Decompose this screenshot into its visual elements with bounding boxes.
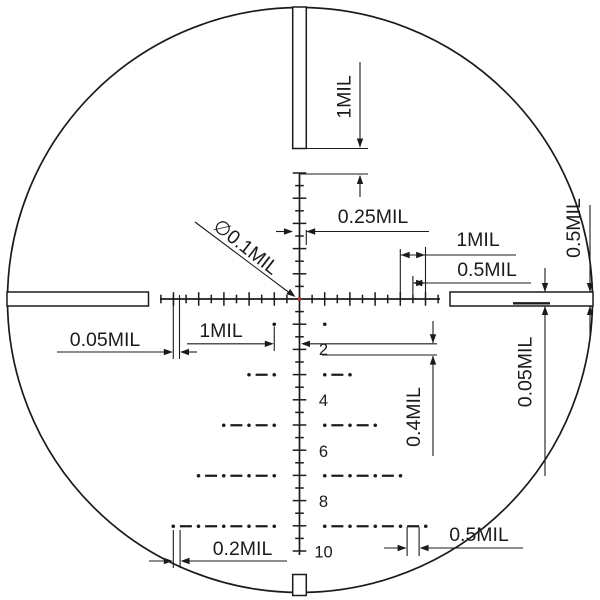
- arrowhead-icon: [542, 283, 548, 292]
- arrowhead-icon: [284, 228, 293, 234]
- arrowhead-icon: [430, 356, 436, 365]
- tree-dot: [348, 524, 352, 528]
- arrowhead-icon: [542, 306, 548, 315]
- arrowhead-icon: [420, 545, 429, 551]
- arrowhead-icon: [416, 252, 425, 258]
- top-post: [293, 7, 307, 149]
- dimension-label-center-dot-diameter: ∅0.1MIL: [209, 215, 283, 280]
- left-post: [7, 292, 149, 306]
- tree-dot: [399, 474, 403, 478]
- bottom-post: [293, 575, 307, 596]
- tree-dot: [222, 423, 226, 427]
- arrowhead-icon: [164, 349, 173, 355]
- tree-dot: [348, 373, 352, 377]
- tree-dot: [323, 524, 327, 528]
- reticle-diagram: 2468101MIL0.25MIL1MIL0.5MIL0.5MIL0.05MIL…: [0, 0, 600, 600]
- tree-dot: [373, 524, 377, 528]
- tree-dot: [348, 474, 352, 478]
- dimension-label-dash-length: 0.5MIL: [449, 524, 509, 546]
- tree-dot: [197, 524, 201, 528]
- reticle-diagram-svg: 2468101MIL0.25MIL1MIL0.5MIL0.5MIL0.05MIL…: [0, 0, 600, 600]
- tree-dot: [222, 524, 226, 528]
- dimension-label-right-minor-spacing: 0.5MIL: [457, 259, 517, 281]
- dimension-label-dot-dash-gap: 0.2MIL: [213, 538, 273, 560]
- dimension-label-tree-column-spacing: 1MIL: [199, 320, 243, 342]
- tree-dot: [323, 423, 327, 427]
- arrowhead-icon: [430, 334, 436, 343]
- tree-dot: [272, 322, 276, 326]
- arrowhead-icon: [306, 228, 315, 234]
- dimension-label-digit-height: 0.4MIL: [403, 387, 425, 447]
- mil-number-label: 4: [319, 392, 328, 410]
- tree-dot: [348, 423, 352, 427]
- tree-dot: [424, 524, 428, 528]
- tree-dot: [399, 524, 403, 528]
- tree-dot: [323, 322, 327, 326]
- tree-dot: [373, 474, 377, 478]
- tree-dot: [247, 524, 251, 528]
- tree-dot: [272, 373, 276, 377]
- arrowhead-icon: [357, 175, 363, 184]
- mil-number-label: 6: [319, 443, 328, 461]
- tree-dot: [247, 423, 251, 427]
- tree-dot: [373, 423, 377, 427]
- dimension-label-top-post-gap: 1MIL: [334, 75, 356, 119]
- dimension-label-tick-width: 0.25MIL: [338, 206, 409, 228]
- dimension-label-post-thickness: 0.5MIL: [563, 198, 585, 258]
- tree-dot: [272, 423, 276, 427]
- mil-number-label: 10: [314, 544, 332, 562]
- tree-dot: [247, 474, 251, 478]
- tree-dot: [272, 474, 276, 478]
- tree-dot: [222, 474, 226, 478]
- arrowhead-icon: [181, 558, 190, 564]
- arrowhead-icon: [286, 289, 297, 300]
- dimension-label-wire-thickness: 0.05MIL: [515, 337, 537, 408]
- arrowhead-icon: [180, 349, 189, 355]
- tree-dot: [323, 373, 327, 377]
- arrowhead-icon: [265, 341, 274, 347]
- arrowhead-icon: [357, 139, 363, 148]
- arrowhead-icon: [301, 341, 310, 347]
- arrowhead-icon: [398, 545, 407, 551]
- dimension-label-right-major-spacing: 1MIL: [456, 229, 500, 251]
- tree-dot: [197, 474, 201, 478]
- mil-number-label: 8: [319, 493, 328, 511]
- tree-dot: [272, 524, 276, 528]
- tree-dot: [171, 524, 175, 528]
- arrowhead-icon: [401, 252, 410, 258]
- tree-dot: [323, 474, 327, 478]
- tree-dot: [247, 373, 251, 377]
- center-aiming-dot: [298, 297, 302, 301]
- dimension-label-left-wire-tip: 0.05MIL: [70, 329, 141, 351]
